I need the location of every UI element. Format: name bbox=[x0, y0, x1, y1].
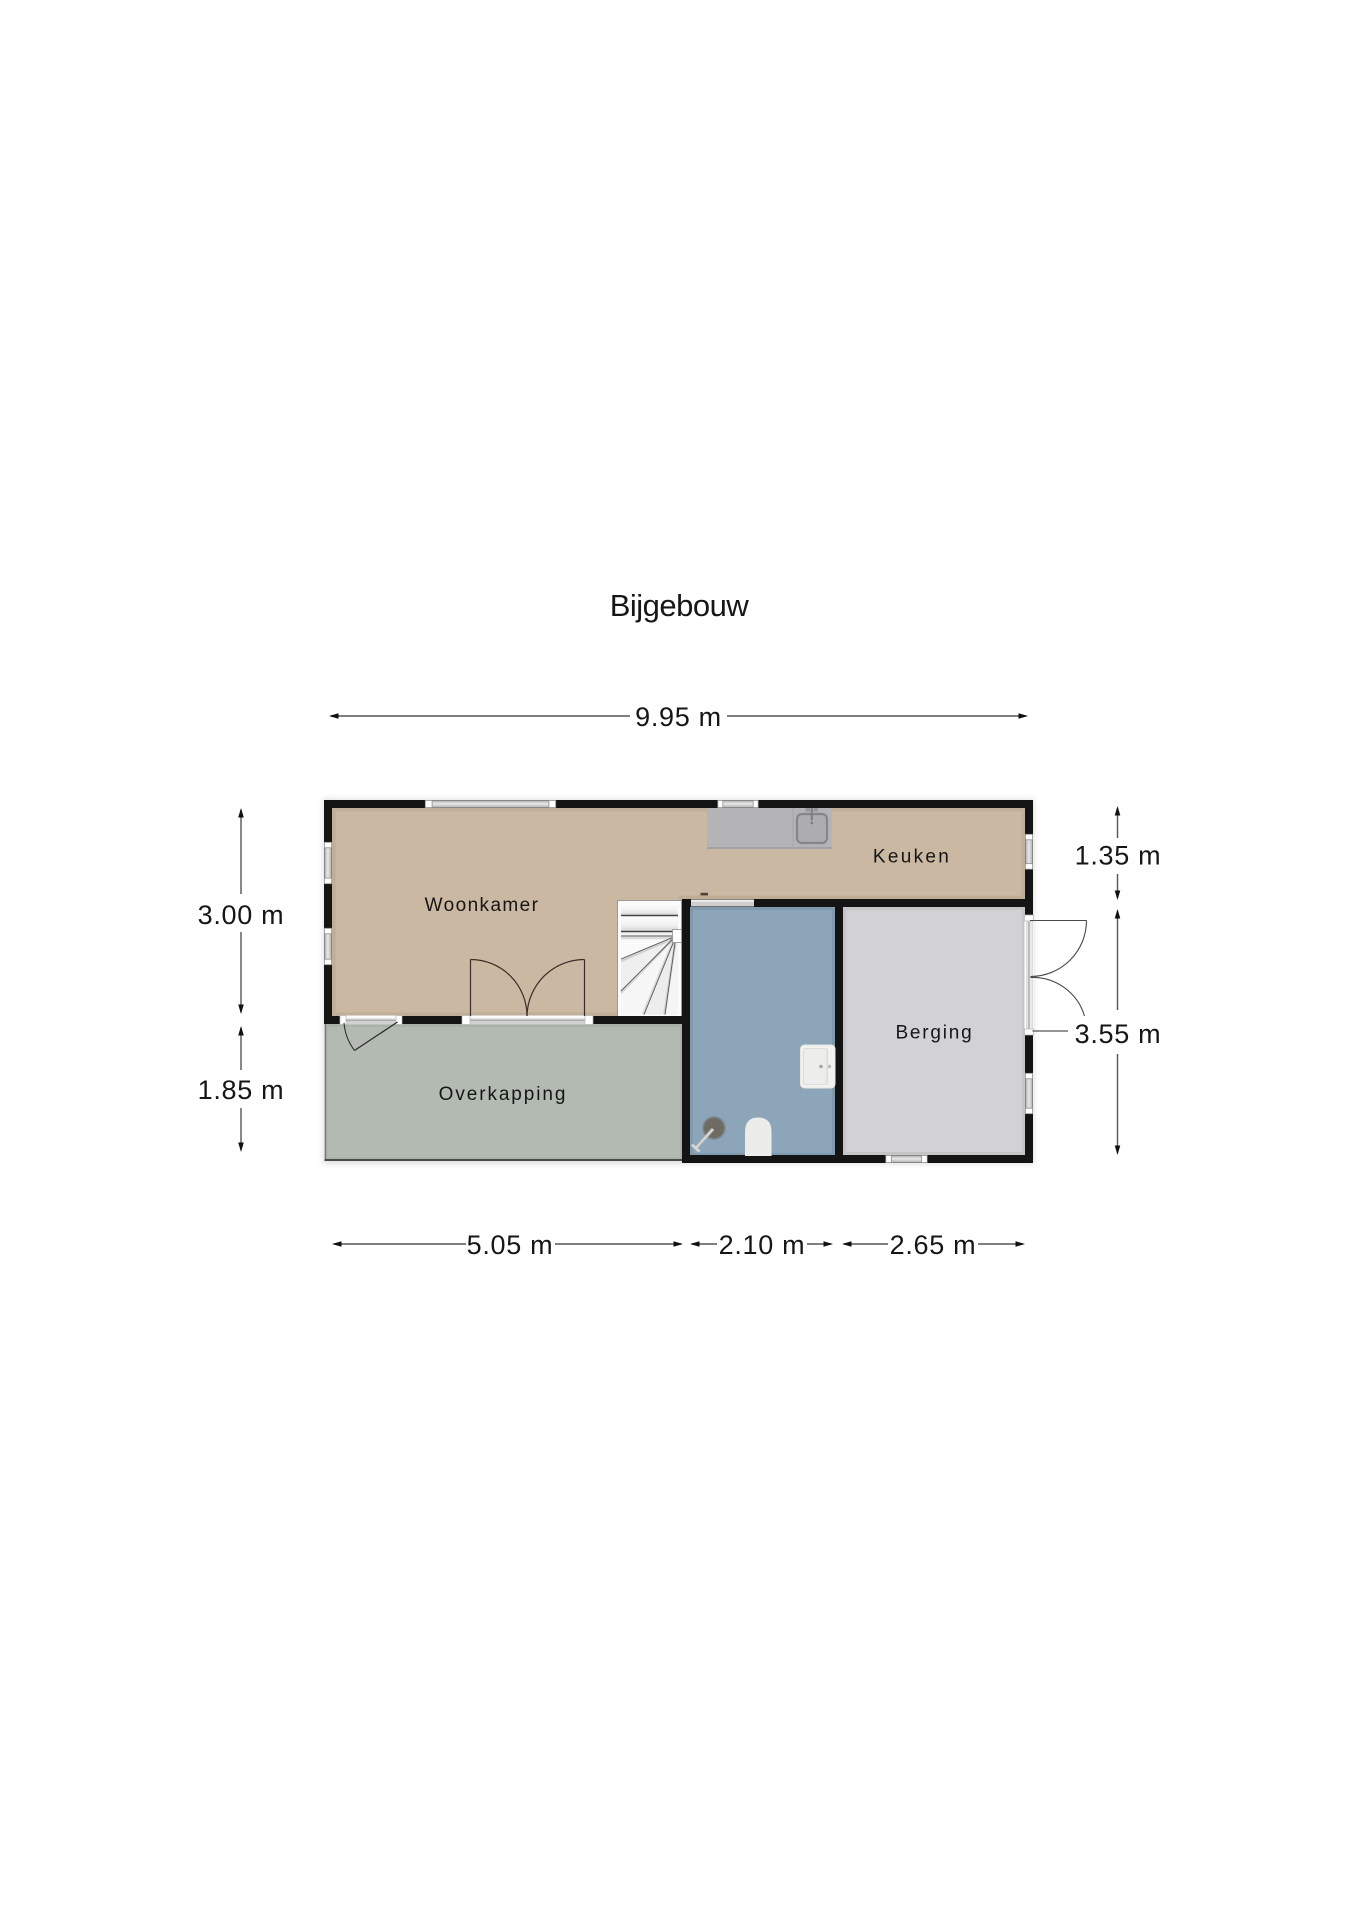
svg-text:1.85 m: 1.85 m bbox=[198, 1075, 285, 1105]
svg-text:Keuken: Keuken bbox=[873, 847, 951, 868]
svg-text:1.35 m: 1.35 m bbox=[1075, 841, 1162, 871]
svg-text:2.65 m: 2.65 m bbox=[890, 1230, 977, 1260]
svg-text:Woonkamer: Woonkamer bbox=[425, 895, 540, 916]
svg-text:Overkapping: Overkapping bbox=[439, 1084, 568, 1105]
svg-text:9.95 m: 9.95 m bbox=[635, 702, 722, 732]
svg-text:5.05 m: 5.05 m bbox=[467, 1230, 554, 1260]
svg-text:2.10 m: 2.10 m bbox=[719, 1230, 806, 1260]
svg-text:3.55 m: 3.55 m bbox=[1075, 1019, 1162, 1049]
svg-text:Bijgebouw: Bijgebouw bbox=[610, 588, 750, 623]
svg-text:3.00 m: 3.00 m bbox=[198, 900, 285, 930]
svg-text:Berging: Berging bbox=[895, 1023, 973, 1044]
